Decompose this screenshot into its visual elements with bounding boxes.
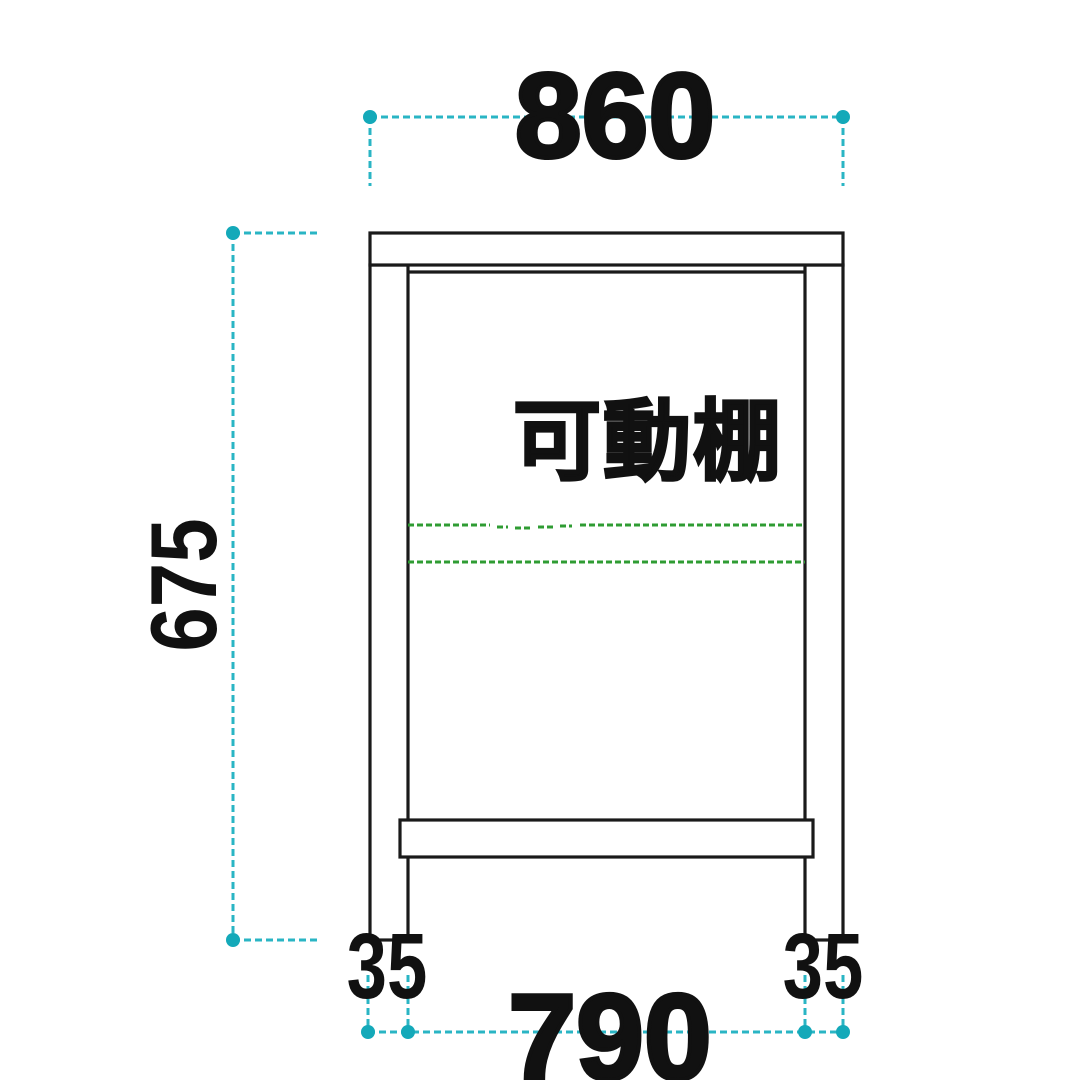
bottom-shelf-bar [400, 820, 813, 857]
dimension-label-leg-left: 35 [347, 920, 428, 1013]
movable-shelf-lines [408, 525, 805, 562]
movable-shelf-label: 可動棚 [513, 398, 783, 486]
top-panel [370, 233, 843, 265]
furniture-dimension-drawing: 860 675 可動棚 35 35 790 [0, 0, 1071, 1080]
dimension-label-top-width: 860 [515, 56, 715, 176]
dimension-label-leg-right: 35 [783, 920, 864, 1013]
dimension-label-bottom-span: 790 [508, 976, 712, 1080]
furniture-outline [370, 233, 843, 940]
dimension-label-side-height: 675 [137, 518, 231, 651]
dimension-side-height [226, 226, 318, 947]
